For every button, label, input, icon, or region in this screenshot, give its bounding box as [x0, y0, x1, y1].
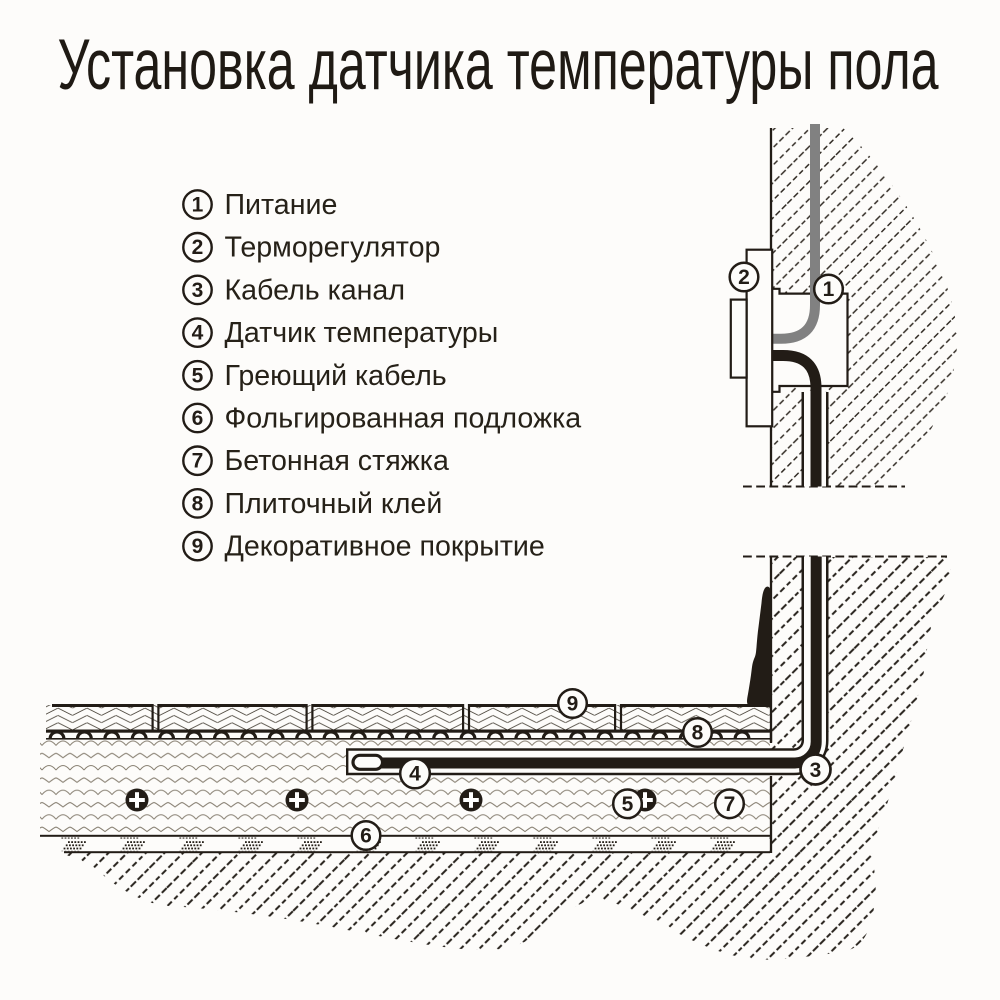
svg-text:6: 6 [360, 825, 372, 848]
svg-text:Плиточный клей: Плиточный клей [225, 488, 443, 520]
svg-text:2: 2 [192, 236, 204, 259]
svg-text:9: 9 [567, 693, 579, 716]
svg-text:9: 9 [192, 535, 204, 558]
svg-text:5: 5 [622, 793, 634, 816]
svg-text:2: 2 [738, 266, 750, 289]
svg-text:8: 8 [692, 722, 704, 745]
svg-text:1: 1 [823, 278, 835, 301]
svg-text:Кабель канал: Кабель канал [225, 274, 406, 306]
svg-text:3: 3 [810, 759, 822, 782]
svg-text:Декоративное покрытие: Декоративное покрытие [225, 531, 545, 563]
svg-text:7: 7 [724, 793, 736, 816]
svg-text:Установка датчика температуры: Установка датчика температуры пола [58, 26, 939, 105]
svg-text:4: 4 [409, 763, 421, 786]
svg-text:Бетонная стяжка: Бетонная стяжка [225, 445, 449, 477]
svg-text:Греющий кабель: Греющий кабель [225, 360, 447, 392]
svg-text:Терморегулятор: Терморегулятор [225, 232, 441, 264]
svg-text:4: 4 [192, 322, 204, 345]
svg-text:8: 8 [192, 492, 204, 515]
svg-text:Фольгированная подложка: Фольгированная подложка [225, 403, 582, 435]
svg-text:Датчик температуры: Датчик температуры [225, 317, 499, 349]
svg-text:6: 6 [192, 407, 204, 430]
svg-text:3: 3 [192, 279, 204, 302]
svg-text:Питание: Питание [225, 189, 338, 221]
svg-text:7: 7 [192, 450, 204, 473]
svg-text:5: 5 [192, 364, 204, 387]
svg-text:1: 1 [192, 194, 204, 217]
